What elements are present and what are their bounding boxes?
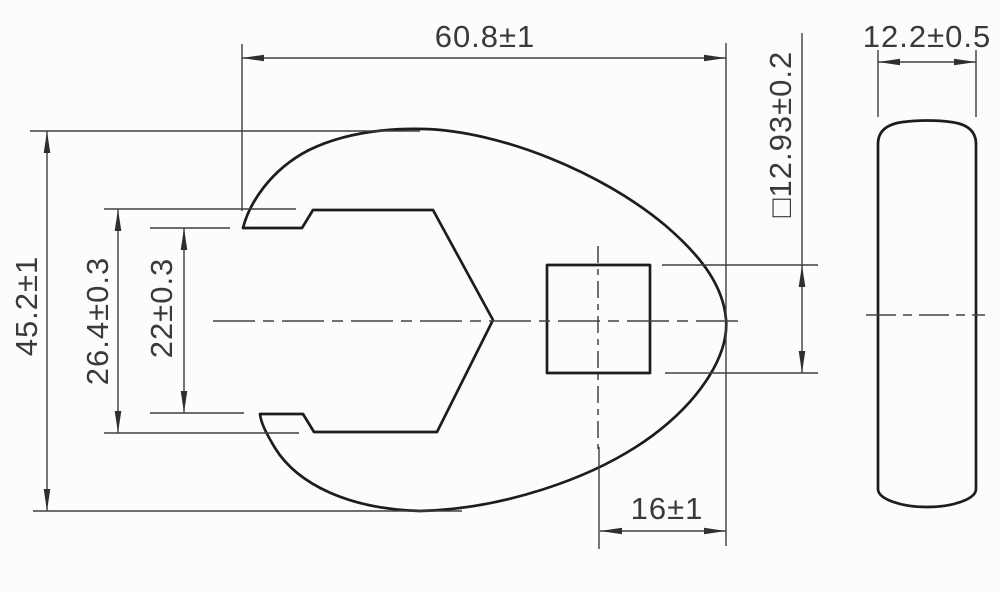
dim-label-overall-width: 60.8±1: [435, 19, 536, 54]
dim-label-thickness: 12.2±0.5: [863, 19, 991, 54]
dim-label-jaw-opening: 22±0.3: [144, 258, 179, 359]
dim-square-drive: □12.93±0.2: [662, 33, 818, 373]
technical-drawing-sheet: 60.8±1 12.2±0.5 □12.93±0.2 45.2±1: [0, 0, 1000, 593]
side-view: [866, 121, 985, 508]
dim-overall-width: 60.8±1: [242, 19, 726, 546]
dim-label-overall-height: 45.2±1: [9, 256, 44, 357]
front-view: [213, 129, 746, 511]
dim-label-square-drive: □12.93±0.2: [763, 51, 798, 217]
crowfoot-wrench-drawing: 60.8±1 12.2±0.5 □12.93±0.2 45.2±1: [0, 0, 1000, 593]
dim-drive-to-tip: 16±1: [599, 447, 726, 549]
side-view-outline: [878, 121, 976, 508]
dim-thickness: 12.2±0.5: [863, 19, 991, 117]
wrench-outline: [243, 129, 726, 511]
dim-label-jaw-inner-width: 26.4±0.3: [80, 257, 115, 385]
dim-label-drive-to-tip: 16±1: [631, 491, 704, 526]
